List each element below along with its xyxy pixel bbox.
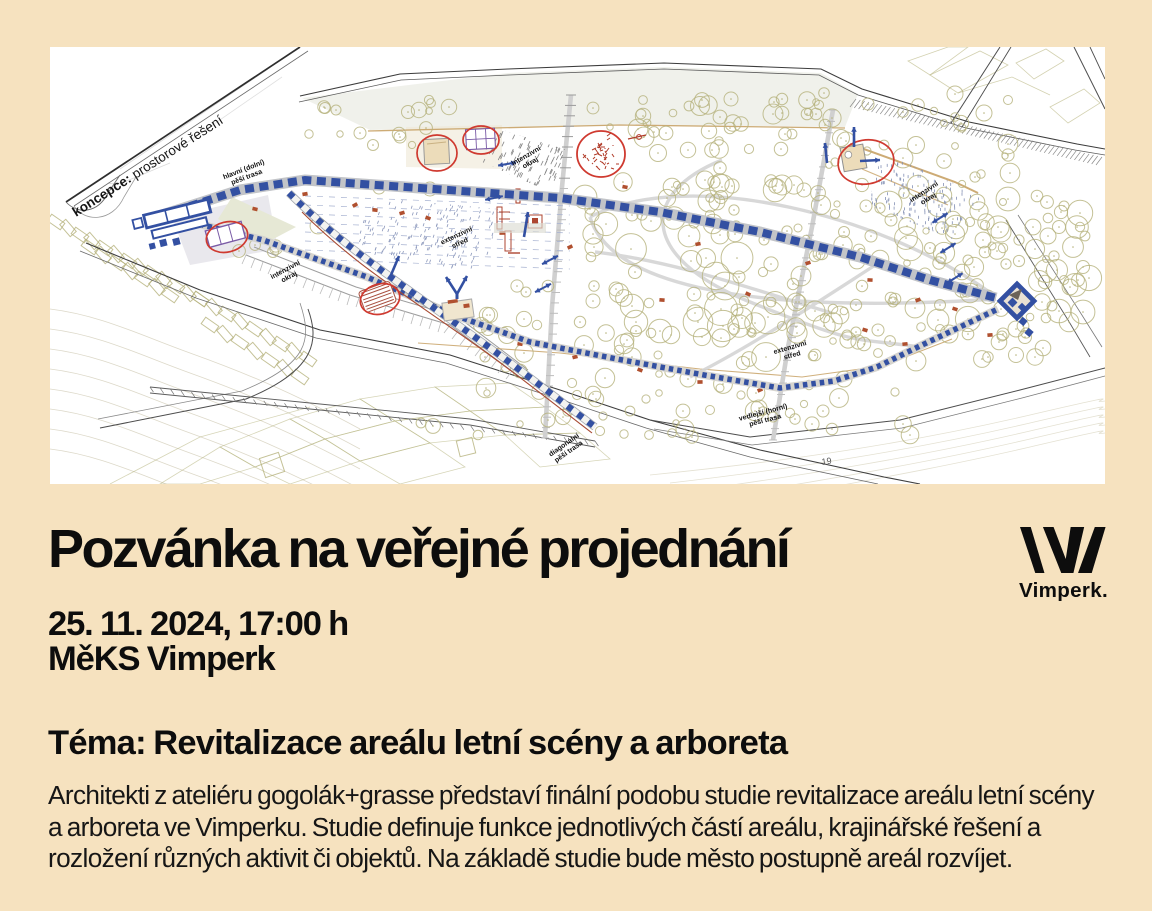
svg-text:19: 19: [821, 456, 832, 467]
